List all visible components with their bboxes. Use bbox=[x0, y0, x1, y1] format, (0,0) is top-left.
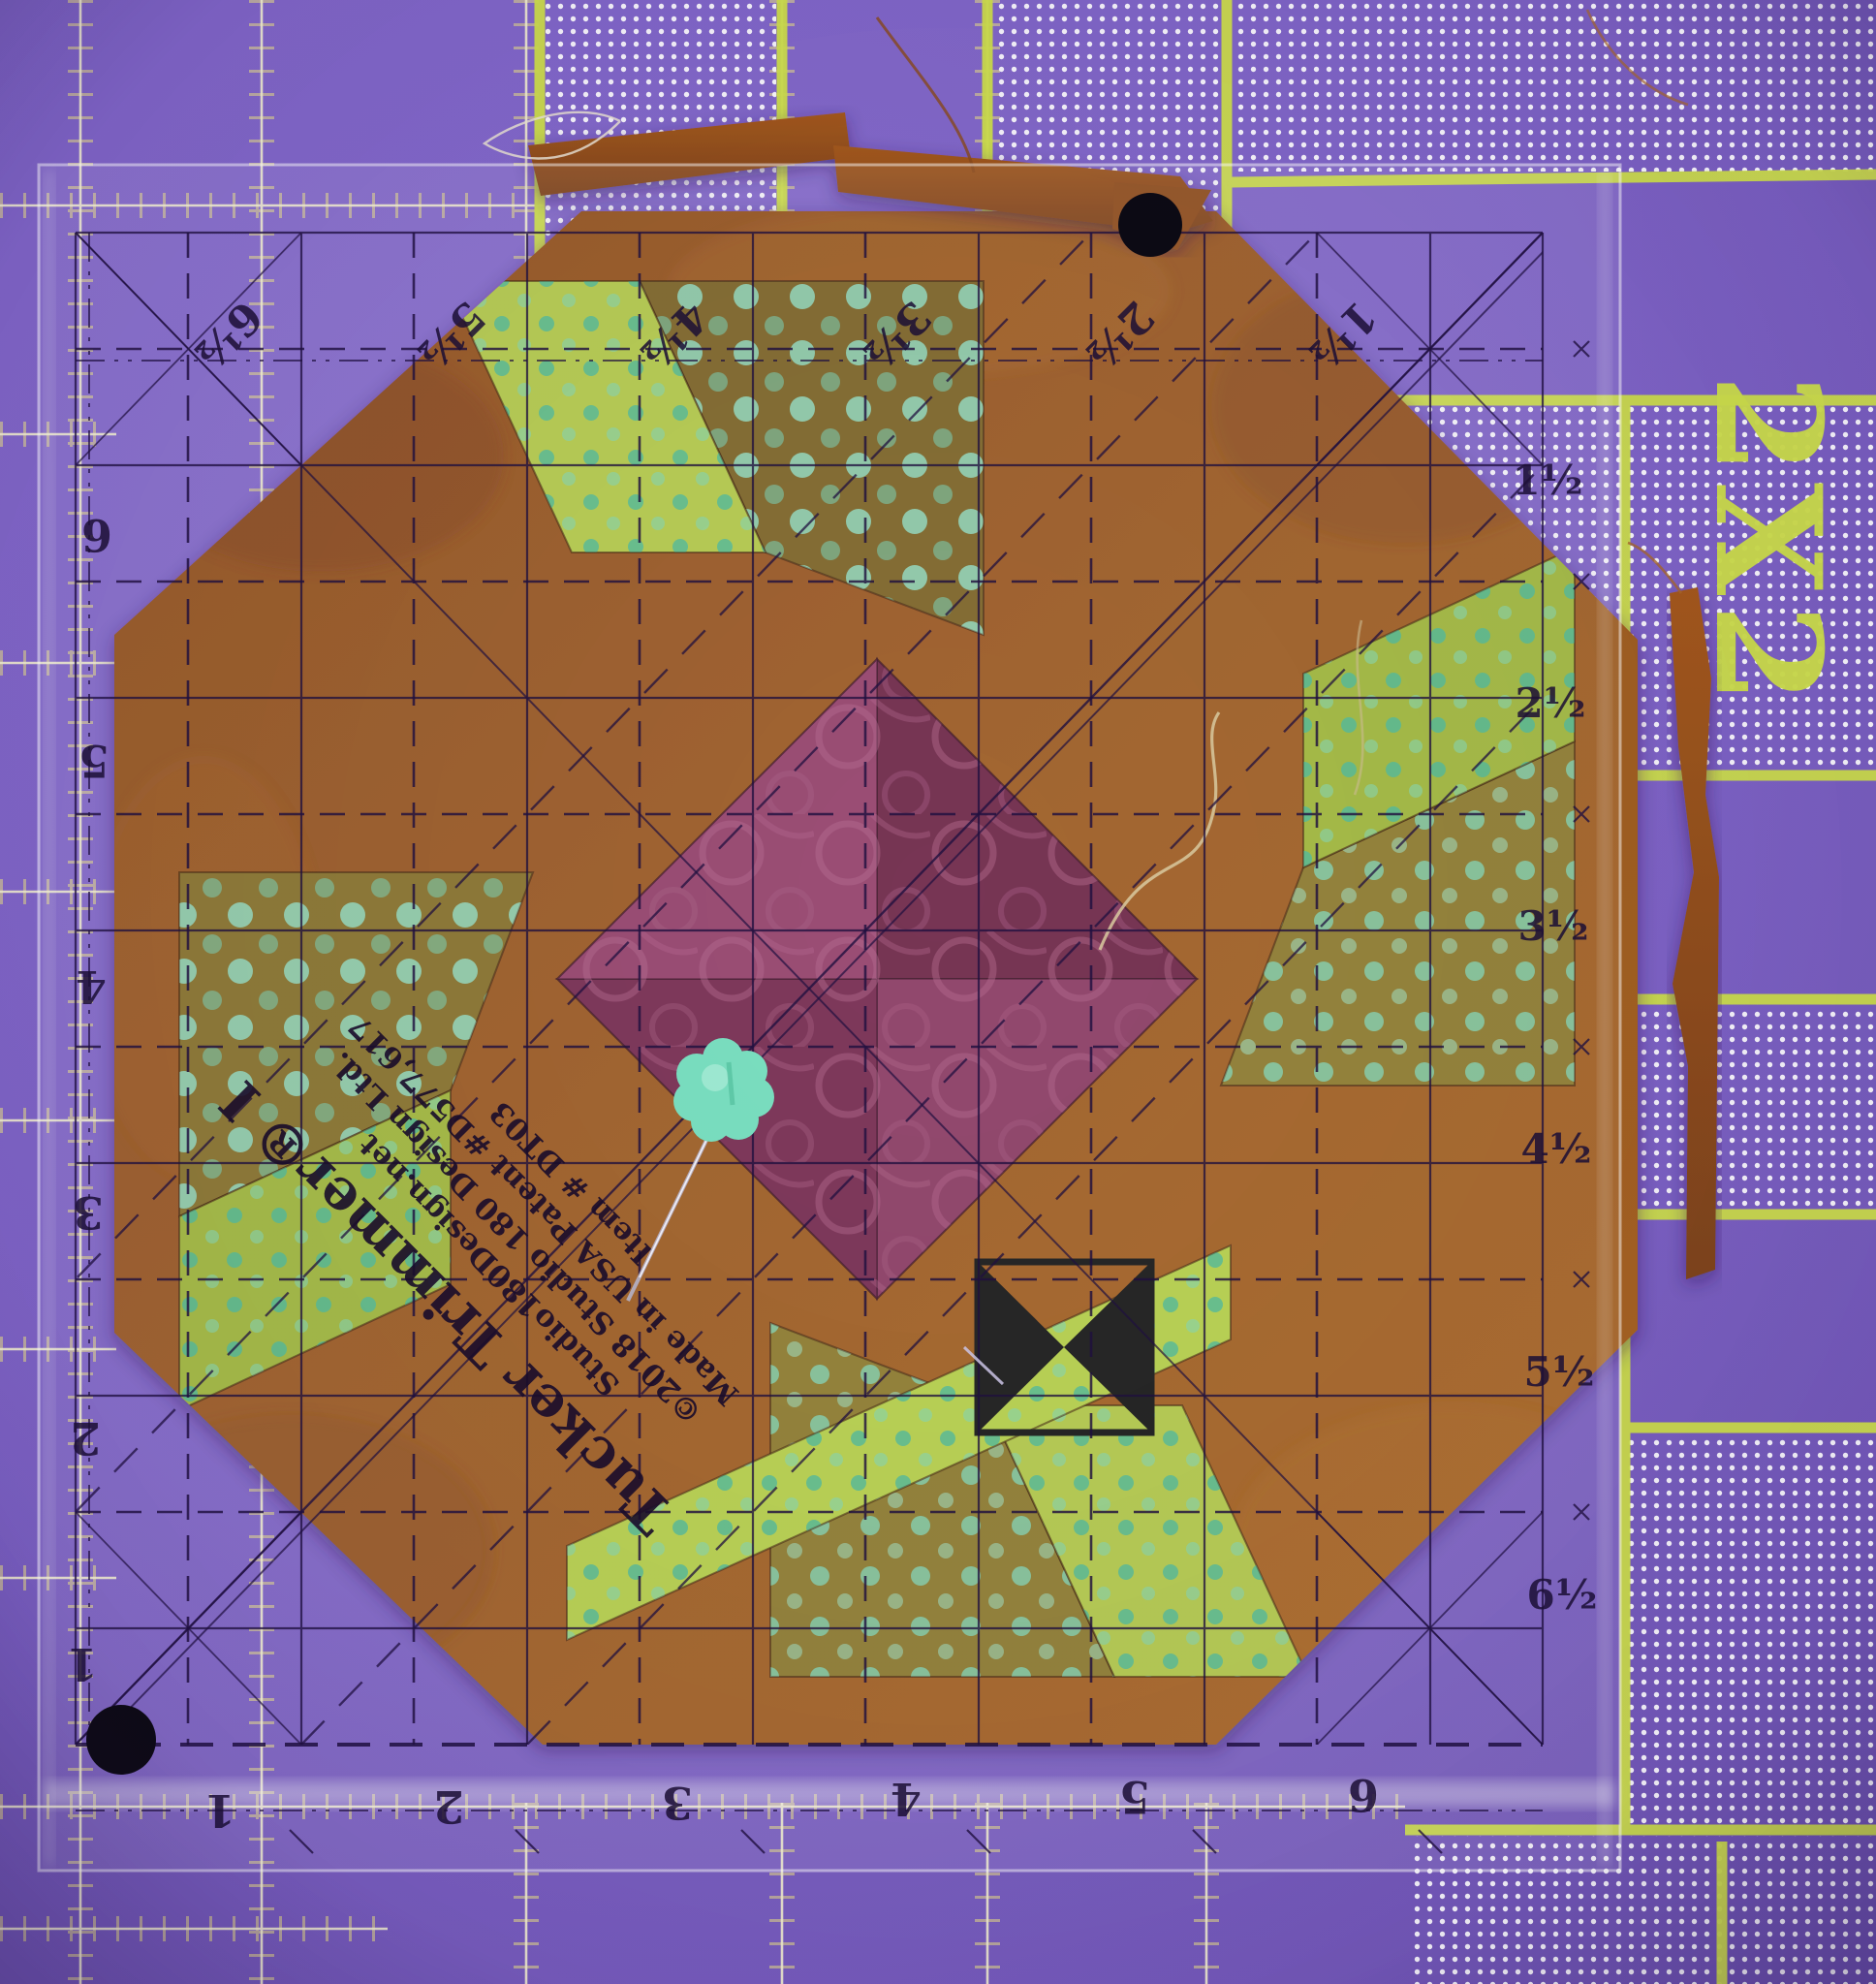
scene-canvas: 2X2 bbox=[0, 0, 1876, 1984]
photo-quilting-scene: 2X2 bbox=[0, 0, 1876, 1984]
photo-vignette bbox=[0, 0, 1876, 1984]
